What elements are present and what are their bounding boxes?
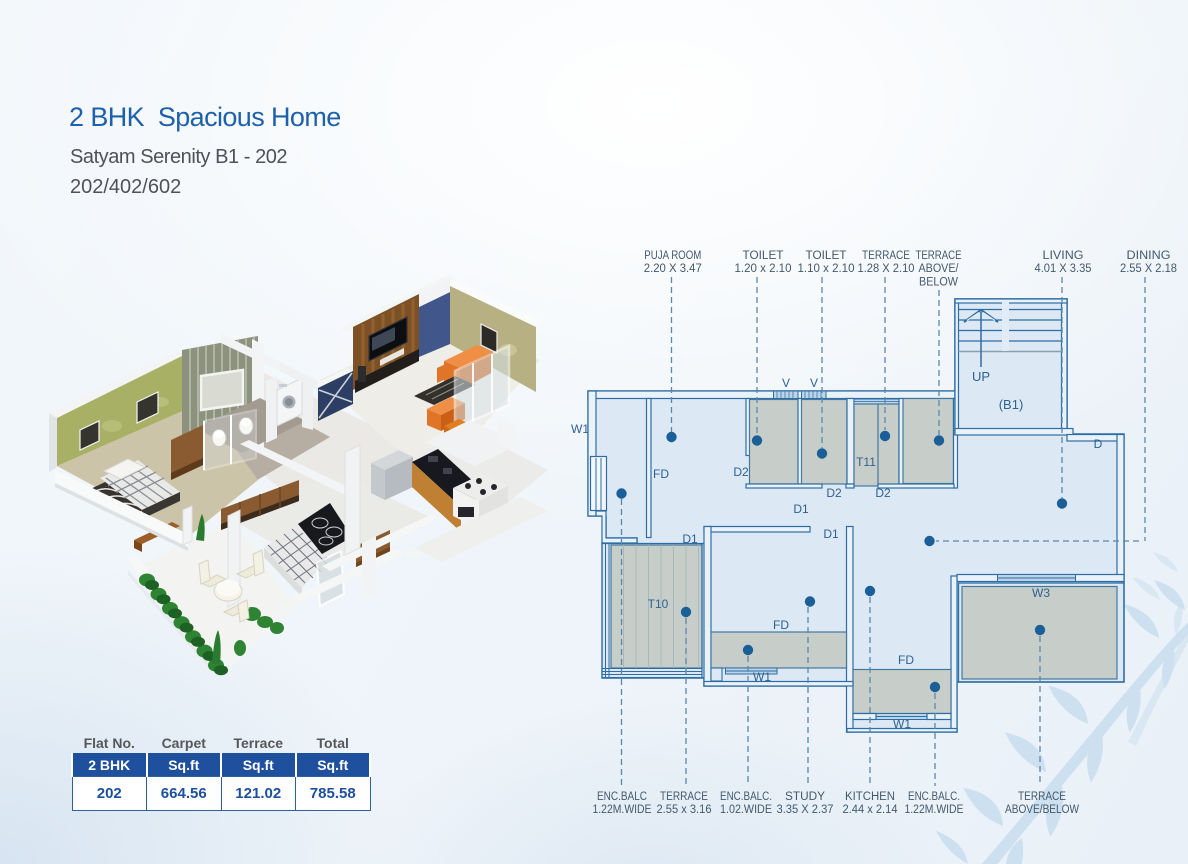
svg-text:BELOW: BELOW: [919, 276, 958, 288]
svg-text:1.22M.WIDE: 1.22M.WIDE: [593, 804, 652, 816]
svg-text:FD: FD: [653, 467, 669, 481]
svg-text:W3: W3: [1032, 586, 1050, 600]
svg-text:TOILET: TOILET: [743, 250, 784, 262]
svg-text:1.28 X 2.10: 1.28 X 2.10: [858, 263, 915, 275]
svg-text:2.55 x 3.16: 2.55 x 3.16: [657, 804, 712, 816]
svg-text:2.55 X 2.18: 2.55 X 2.18: [1120, 263, 1177, 275]
svg-text:DINING: DINING: [1127, 250, 1171, 262]
svg-text:PUJA ROOM: PUJA ROOM: [644, 250, 701, 262]
svg-text:T10: T10: [648, 597, 669, 611]
svg-text:V: V: [810, 376, 818, 390]
svg-text:1.20 x 2.10: 1.20 x 2.10: [735, 263, 792, 275]
svg-text:ABOVE/: ABOVE/: [919, 263, 960, 275]
svg-text:W1: W1: [571, 422, 589, 436]
svg-text:TERRACE: TERRACE: [916, 250, 962, 262]
svg-text:D2: D2: [733, 465, 749, 479]
svg-text:ENC.BALC.: ENC.BALC.: [720, 791, 772, 803]
svg-text:W1: W1: [753, 670, 771, 684]
svg-text:D: D: [1094, 437, 1103, 451]
svg-text:3.35 X 2.37: 3.35 X 2.37: [777, 804, 834, 816]
svg-text:4.01 X 3.35: 4.01 X 3.35: [1035, 263, 1092, 275]
svg-text:TERRACE: TERRACE: [862, 250, 910, 262]
svg-text:ABOVE/BELOW: ABOVE/BELOW: [1005, 804, 1079, 816]
svg-text:FD: FD: [898, 653, 914, 667]
svg-text:T11: T11: [856, 455, 876, 469]
svg-text:D1: D1: [793, 502, 809, 516]
svg-text:1.10 x 2.10: 1.10 x 2.10: [798, 263, 855, 275]
svg-text:UP: UP: [972, 369, 990, 384]
svg-text:ENC.BALC: ENC.BALC: [597, 791, 647, 803]
svg-text:(B1): (B1): [999, 397, 1024, 412]
svg-text:2.20 X 3.47: 2.20 X 3.47: [644, 263, 702, 275]
svg-text:W1: W1: [893, 717, 911, 731]
svg-text:FD: FD: [773, 618, 789, 632]
svg-text:2.44 x 2.14: 2.44 x 2.14: [843, 804, 899, 816]
svg-text:TERRACE: TERRACE: [660, 791, 708, 803]
svg-text:ENC.BALC.: ENC.BALC.: [908, 791, 960, 803]
svg-text:D1: D1: [682, 532, 698, 546]
svg-text:D2: D2: [875, 486, 891, 500]
svg-text:D2: D2: [826, 486, 842, 500]
svg-text:1.22M.WIDE: 1.22M.WIDE: [905, 804, 964, 816]
svg-text:TOILET: TOILET: [806, 250, 847, 262]
svg-text:KITCHEN: KITCHEN: [845, 791, 895, 803]
svg-text:LIVING: LIVING: [1043, 250, 1084, 262]
svg-text:TERRACE: TERRACE: [1018, 791, 1066, 803]
svg-text:V: V: [782, 376, 790, 390]
svg-text:D1: D1: [823, 527, 839, 541]
svg-text:STUDY: STUDY: [785, 791, 825, 803]
svg-text:1.02.WIDE: 1.02.WIDE: [720, 804, 772, 816]
